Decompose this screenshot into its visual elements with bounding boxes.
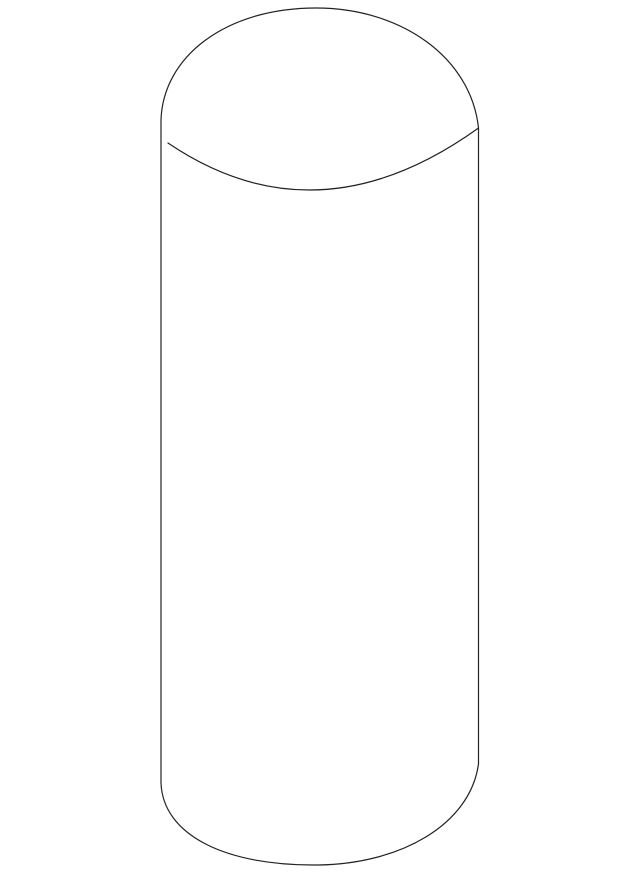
part-top-edge-curve [168, 128, 479, 190]
canvas [0, 0, 640, 877]
part-outline [161, 8, 479, 865]
part-illustration [0, 0, 640, 877]
